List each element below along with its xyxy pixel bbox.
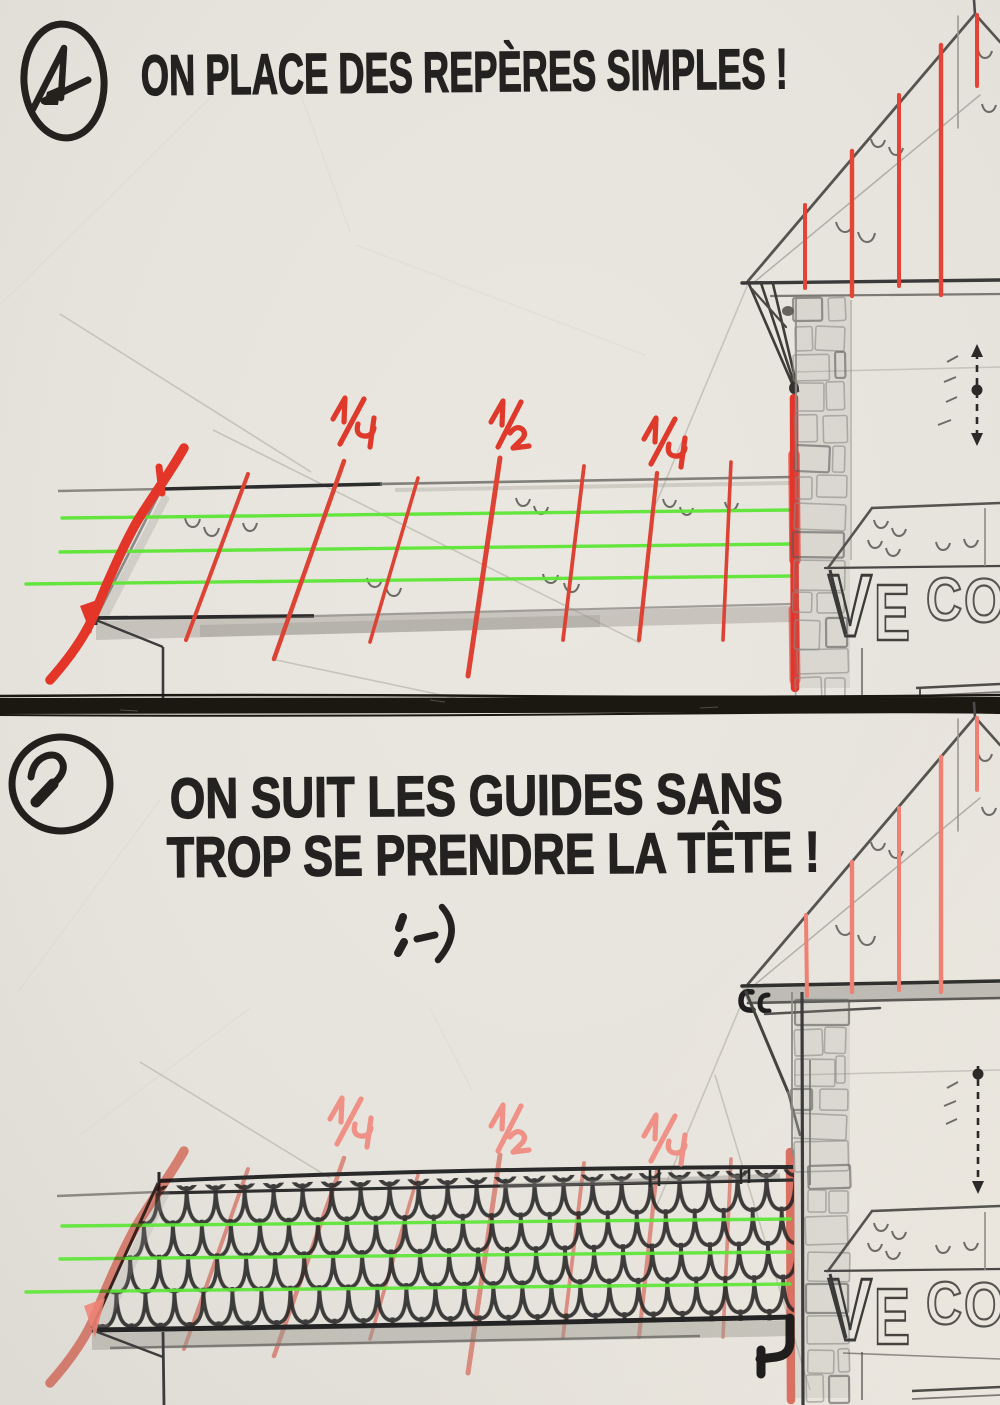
- svg-text:TROP SE PRENDRE LA TÊTE !: TROP SE PRENDRE LA TÊTE !: [167, 819, 821, 890]
- svg-text:O: O: [964, 567, 1000, 636]
- svg-text:V: V: [828, 556, 872, 655]
- svg-text:C: C: [926, 566, 962, 633]
- svg-text:E: E: [874, 568, 910, 657]
- svg-text:ON PLACE DES REPÈRES SIMPLES !: ON PLACE DES REPÈRES SIMPLES !: [140, 37, 788, 108]
- svg-text:C: C: [926, 1270, 962, 1337]
- svg-text:E: E: [874, 1272, 910, 1361]
- svg-text:V: V: [828, 1260, 872, 1359]
- svg-text:O: O: [964, 1271, 1000, 1340]
